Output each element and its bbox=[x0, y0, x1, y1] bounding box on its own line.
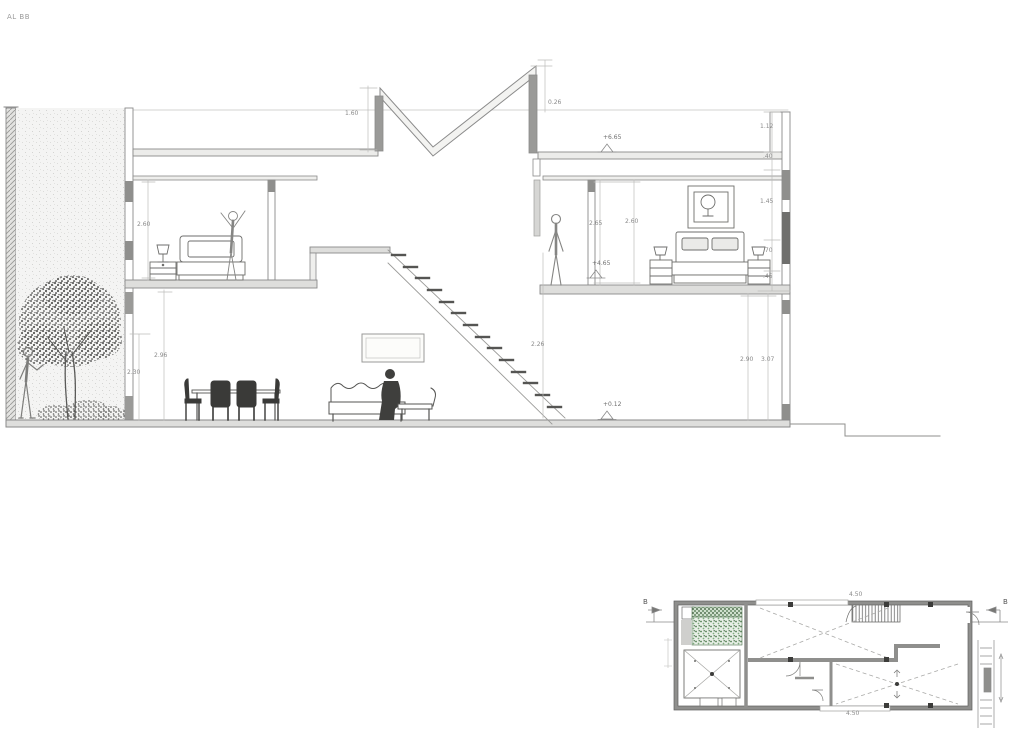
nightstand-left-bedroom bbox=[150, 262, 176, 280]
stairwell-wall bbox=[534, 180, 540, 236]
dim-right-e: .45 bbox=[763, 273, 773, 280]
plan-x-center-dot bbox=[895, 682, 899, 686]
plan-street-strip bbox=[978, 640, 1003, 728]
roof-assembly bbox=[133, 66, 790, 159]
slab-upper-right bbox=[540, 285, 790, 294]
ceiling-left bbox=[133, 176, 317, 180]
dining-set bbox=[185, 379, 280, 420]
level-marker-roof bbox=[598, 144, 616, 152]
left-exterior-wall bbox=[125, 108, 133, 424]
stair-landing bbox=[310, 247, 390, 253]
dim-right-d: .70 bbox=[763, 247, 773, 254]
plan-shower-room bbox=[684, 650, 740, 706]
dim-ground-right-2: 3.07 bbox=[761, 356, 774, 363]
plan-left-dim-tick bbox=[664, 638, 672, 668]
section-marker-b-right: B bbox=[1003, 599, 1008, 606]
dim-right-c: 1.45 bbox=[760, 198, 773, 205]
clerestory-wall bbox=[533, 159, 540, 176]
drawing-linework bbox=[0, 0, 1024, 751]
right-bedroom-furniture bbox=[549, 186, 770, 285]
roof-flat-left bbox=[133, 149, 378, 156]
bench-daybed bbox=[398, 388, 436, 420]
dim-right-a: 1.12 bbox=[760, 123, 773, 130]
plan-dim-top: 4.50 bbox=[849, 591, 862, 598]
floor-plan bbox=[646, 600, 1008, 728]
lamp-left-bedroom bbox=[157, 245, 169, 262]
street-ground-line bbox=[790, 424, 940, 436]
architectural-drawing-sheet: AL BB 1.60 0.26 +6.65 1.12 .40 1.45 .70 … bbox=[0, 0, 1024, 751]
level-roof-label: +6.65 bbox=[603, 134, 621, 141]
landing-riser bbox=[310, 253, 316, 280]
person-standing bbox=[549, 215, 563, 286]
garden-boundary-wall bbox=[4, 107, 18, 424]
interior-walls bbox=[268, 180, 595, 285]
garden-courtyard-area bbox=[16, 108, 125, 422]
dim-ground-left-1: 2.96 bbox=[154, 352, 167, 359]
tv-wall-frame bbox=[362, 334, 424, 362]
section-marker-b-left: B bbox=[643, 599, 648, 606]
plan-dim-bottom: 4.50 bbox=[846, 710, 859, 717]
dim-bedroom-left: 2.60 bbox=[137, 221, 150, 228]
slab-upper-left bbox=[125, 280, 317, 288]
roof-flat-right bbox=[538, 152, 784, 159]
dim-stair: 2.26 bbox=[531, 341, 544, 348]
slab-ground bbox=[6, 420, 790, 427]
roof-left-peak-wall bbox=[375, 96, 383, 151]
ceiling-right bbox=[543, 176, 782, 180]
right-facade-wall bbox=[782, 112, 790, 424]
level-marker-ground bbox=[598, 411, 616, 420]
left-bedroom-furniture bbox=[150, 211, 245, 280]
dim-roof-right: 0.26 bbox=[548, 99, 561, 106]
dim-ground-left-2: 2.30 bbox=[127, 369, 140, 376]
dim-bedroom-right-1: 2.65 bbox=[589, 220, 602, 227]
dim-bedroom-right-2: 2.60 bbox=[625, 218, 638, 225]
dim-right-b: .40 bbox=[763, 153, 773, 160]
double-bed bbox=[672, 232, 748, 283]
section-drawing bbox=[4, 60, 940, 436]
picture-frame bbox=[688, 186, 734, 228]
dim-ground-right-1: 2.90 bbox=[740, 356, 753, 363]
ground-floor-furniture bbox=[185, 334, 436, 421]
level-ground-label: +0.12 bbox=[603, 401, 621, 408]
level-bedroom-label: +4.65 bbox=[592, 260, 610, 267]
nightstand-right-1 bbox=[650, 247, 672, 284]
dim-roof-left: 1.60 bbox=[345, 110, 358, 117]
roof-right-peak-wall bbox=[529, 75, 537, 153]
sheet-title: AL BB bbox=[7, 14, 30, 21]
roof-m-butterfly bbox=[380, 66, 536, 156]
plan-patio-garden bbox=[681, 607, 742, 706]
